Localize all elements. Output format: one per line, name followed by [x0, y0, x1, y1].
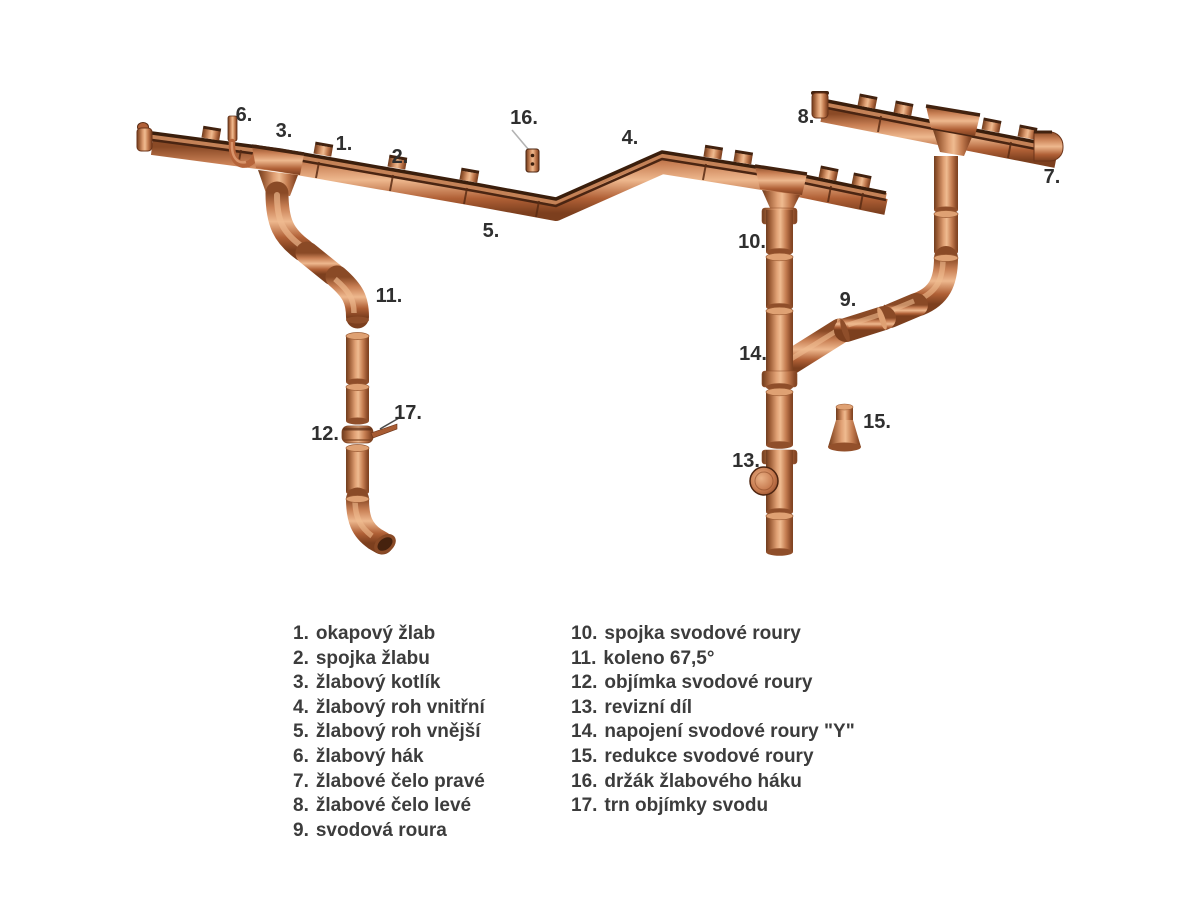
callout-4: 4.: [622, 127, 639, 149]
legend-item: 12.objímka svodové roury: [571, 671, 855, 696]
legend-item: 11.koleno 67,5°: [571, 647, 855, 672]
legend-item-label: žlabový kotlík: [316, 672, 441, 693]
legend-item-number: 12.: [571, 671, 597, 696]
callout-3: 3.: [276, 120, 293, 142]
legend-item-label: spojka svodové roury: [604, 623, 800, 644]
legend-item-label: napojení svodové roury "Y": [604, 721, 854, 742]
downpipe-right-branch: [838, 106, 980, 343]
legend-item-number: 3.: [293, 671, 309, 696]
callout-16: 16.: [510, 107, 538, 129]
legend-item-number: 7.: [293, 770, 309, 795]
legend-item: 6.žlabový hák: [293, 745, 485, 770]
legend-item-label: revizní díl: [604, 697, 692, 718]
legend-item-number: 4.: [293, 696, 309, 721]
legend-item: 9.svodová roura: [293, 819, 485, 844]
callout-6: 6.: [236, 104, 253, 126]
legend-column-right: 10.spojka svodové roury 11.koleno 67,5° …: [571, 622, 855, 819]
legend-item: 10.spojka svodové roury: [571, 622, 855, 647]
legend-item-number: 14.: [571, 720, 597, 745]
legend-item: 2.spojka žlabu: [293, 647, 485, 672]
legend-item-label: spojka žlabu: [316, 648, 430, 669]
legend-item: 16.držák žlabového háku: [571, 770, 855, 795]
legend-item-label: žlabový roh vnější: [316, 721, 481, 742]
legend-item-number: 11.: [571, 647, 596, 672]
diagram-stage: 1. 2. 3. 4. 5. 6. 7. 8. 9. 10. 11. 12. 1…: [0, 0, 1194, 900]
callout-5: 5.: [483, 220, 500, 242]
legend-item-number: 13.: [571, 696, 597, 721]
legend-item-label: žlabový roh vnitřní: [316, 697, 485, 718]
callout-8: 8.: [798, 106, 815, 128]
downpipe-left: [342, 333, 400, 559]
gutter-bracket: [512, 130, 539, 172]
legend-item-label: koleno 67,5°: [603, 648, 714, 669]
legend-item: 13.revizní díl: [571, 696, 855, 721]
callout-15: 15.: [863, 411, 891, 433]
legend-item-number: 16.: [571, 770, 597, 795]
legend-item: 14.napojení svodové roury "Y": [571, 720, 855, 745]
reducer: [828, 404, 861, 452]
legend-item: 5.žlabový roh vnější: [293, 720, 485, 745]
legend-item-number: 8.: [293, 794, 309, 819]
callout-11: 11.: [376, 285, 403, 307]
legend-item: 17.trn objímky svodu: [571, 794, 855, 819]
callout-7: 7.: [1044, 166, 1061, 188]
legend-item-number: 15.: [571, 745, 597, 770]
legend-item-number: 17.: [571, 794, 597, 819]
legend-item-label: trn objímky svodu: [604, 795, 768, 816]
end-cap-right: [1034, 132, 1063, 161]
legend-item-number: 1.: [293, 622, 309, 647]
callout-10: 10.: [738, 231, 766, 253]
leader-line-16: [512, 130, 528, 149]
callout-1: 1.: [336, 133, 353, 155]
gutter-system-diagram: 1. 2. 3. 4. 5. 6. 7. 8. 9. 10. 11. 12. 1…: [0, 0, 1194, 610]
legend-item: 8.žlabové čelo levé: [293, 794, 485, 819]
legend-item-number: 5.: [293, 720, 309, 745]
legend-item-number: 9.: [293, 819, 309, 844]
legend-item-number: 2.: [293, 647, 309, 672]
legend-column-left: 1.okapový žlab 2.spojka žlabu 3.žlabový …: [293, 622, 485, 843]
legend-item: 15.redukce svodové roury: [571, 745, 855, 770]
legend-item-label: redukce svodové roury: [604, 746, 813, 767]
legend-item-label: žlabový hák: [316, 746, 424, 767]
legend-item-label: žlabové čelo pravé: [316, 771, 485, 792]
legend-item-label: svodová roura: [316, 820, 447, 841]
callout-9: 9.: [840, 289, 857, 311]
legend-item-label: objímka svodové roury: [604, 672, 812, 693]
legend-item: 7.žlabové čelo pravé: [293, 770, 485, 795]
callout-12: 12.: [311, 423, 339, 445]
legend-item-number: 10.: [571, 622, 597, 647]
callout-2: 2.: [392, 146, 409, 168]
legend-item: 4.žlabový roh vnitřní: [293, 696, 485, 721]
legend-item-label: okapový žlab: [316, 623, 435, 644]
y-junction: [762, 307, 849, 391]
callout-17: 17.: [394, 402, 422, 424]
callout-14: 14.: [739, 343, 767, 365]
legend-item-number: 6.: [293, 745, 309, 770]
legend-item-label: držák žlabového háku: [604, 771, 801, 792]
legend-item: 1.okapový žlab: [293, 622, 485, 647]
gutter-left-end: [137, 123, 152, 152]
legend-item: 3.žlabový kotlík: [293, 671, 485, 696]
legend-item-label: žlabové čelo levé: [316, 795, 471, 816]
callout-13: 13.: [732, 450, 760, 472]
